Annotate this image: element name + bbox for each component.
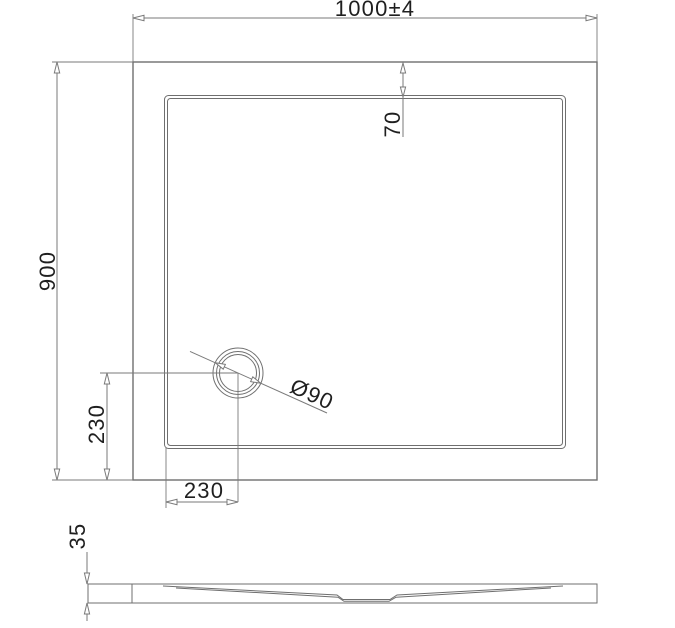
arrowhead-up bbox=[400, 63, 405, 73]
dim-drain-offset-horizontal: 230 bbox=[166, 448, 238, 508]
dim-drain-offset-vertical: 230 bbox=[84, 373, 110, 480]
plan-inner-edge-outer-line bbox=[165, 96, 566, 449]
dim-drain-diameter-label: Ø90 bbox=[286, 373, 337, 414]
dim-drain-inset-top: 70 bbox=[380, 62, 406, 137]
arrowhead-left bbox=[166, 499, 177, 504]
technical-drawing: 1000±4 900 70 230 230 Ø90 bbox=[0, 0, 675, 628]
dim-rim-inset-label: 70 bbox=[380, 111, 405, 138]
profile-basin-slope-upper bbox=[163, 586, 563, 600]
dim-overall-width-label: 1000±4 bbox=[335, 0, 415, 21]
dim-drain-horizontal-label: 230 bbox=[184, 478, 224, 503]
arrowhead-bottom bbox=[104, 469, 109, 480]
plan-inner-edge-inner-line bbox=[168, 99, 563, 446]
arrowhead-left bbox=[133, 15, 144, 20]
plan-view bbox=[100, 62, 597, 502]
dim-overall-width: 1000±4 bbox=[133, 0, 597, 62]
side-profile-view bbox=[88, 584, 597, 603]
dim-tray-height-label: 35 bbox=[65, 523, 90, 550]
arrowhead-up bbox=[84, 603, 89, 614]
dim-tray-height: 35 bbox=[65, 523, 90, 621]
dim-overall-depth-label: 900 bbox=[35, 251, 60, 291]
drawing-canvas: 1000±4 900 70 230 230 Ø90 bbox=[0, 0, 675, 628]
arrowhead-top bbox=[104, 373, 109, 384]
arrowhead-bottom bbox=[54, 469, 59, 480]
dim-drain-vertical-label: 230 bbox=[84, 404, 109, 444]
plan-outer-edge bbox=[133, 62, 597, 480]
arrowhead-right bbox=[227, 499, 238, 504]
arrowhead-top bbox=[54, 62, 59, 73]
arrowhead-down bbox=[84, 573, 89, 584]
dim-drain-diameter: Ø90 bbox=[190, 351, 338, 415]
arrowhead-right bbox=[586, 15, 597, 20]
